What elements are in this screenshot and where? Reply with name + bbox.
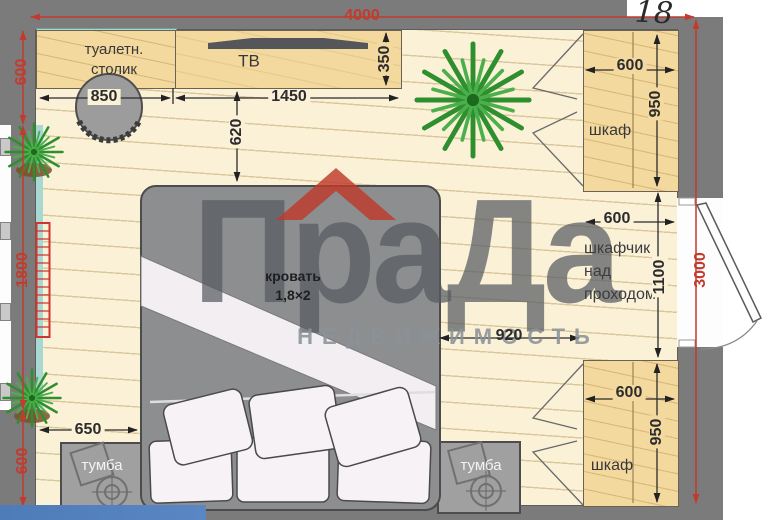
watermark-banner: [0, 505, 206, 520]
plant-icon: [5, 123, 62, 180]
dim-wardrobe-bottom-depth: 950: [649, 416, 665, 449]
dim-tv-console-width: 1450: [268, 89, 310, 105]
dim-wardrobe-top-depth: 950: [648, 88, 664, 121]
dim-wardrobe-top-width: 600: [614, 58, 647, 74]
overhead-cabinet-label: шкафчик над проходом: [584, 237, 656, 307]
wardrobe-bottom-label: шкаф: [591, 455, 633, 477]
watermark-roof-icon: [270, 163, 410, 225]
wardrobe-top-label: шкаф: [589, 120, 631, 142]
lamp-left: [71, 443, 132, 512]
pillows: [149, 384, 431, 503]
dim-console-to-bed: 620: [229, 116, 245, 149]
watermark-subtitle: НЕДВИЖИМОСТЬ: [297, 324, 599, 350]
plant-icon: [3, 369, 60, 426]
tv-label: ТВ: [238, 51, 260, 74]
dim-wall-to-nightstand: 650: [72, 422, 105, 438]
bed-label: кровать 1,8×2: [265, 267, 321, 305]
floor-plan: ПраДа НЕДВИЖИМОСТЬ туалетн. столик ТВ шк…: [0, 0, 772, 520]
dim-left-wall-top: 600: [14, 56, 30, 89]
dim-left-wall-bottom: 600: [15, 445, 31, 478]
dim-cabinet-opening: 1100: [652, 257, 668, 298]
dim-wardrobe-bottom-width: 600: [613, 385, 646, 401]
tv-set: [208, 38, 368, 49]
dim-window: 1800: [15, 249, 31, 291]
dim-room-height: 3000: [693, 249, 709, 291]
lamp-right: [448, 442, 506, 511]
vanity-label: туалетн. столик: [85, 40, 144, 81]
nightstand-right-label: тумба: [460, 456, 501, 476]
stool: [76, 74, 142, 140]
dim-vanity-width: 850: [88, 89, 121, 105]
dim-room-width: 4000: [341, 8, 383, 24]
dim-bed-to-wardrobe: 920: [493, 328, 526, 344]
area-number: 18: [634, 0, 674, 31]
nightstand-left-label: тумба: [81, 456, 122, 476]
dim-cabinet-width: 600: [601, 211, 634, 227]
radiator: [36, 223, 50, 337]
dim-console-depth: 350: [377, 43, 393, 76]
plant-icon: [417, 44, 529, 156]
